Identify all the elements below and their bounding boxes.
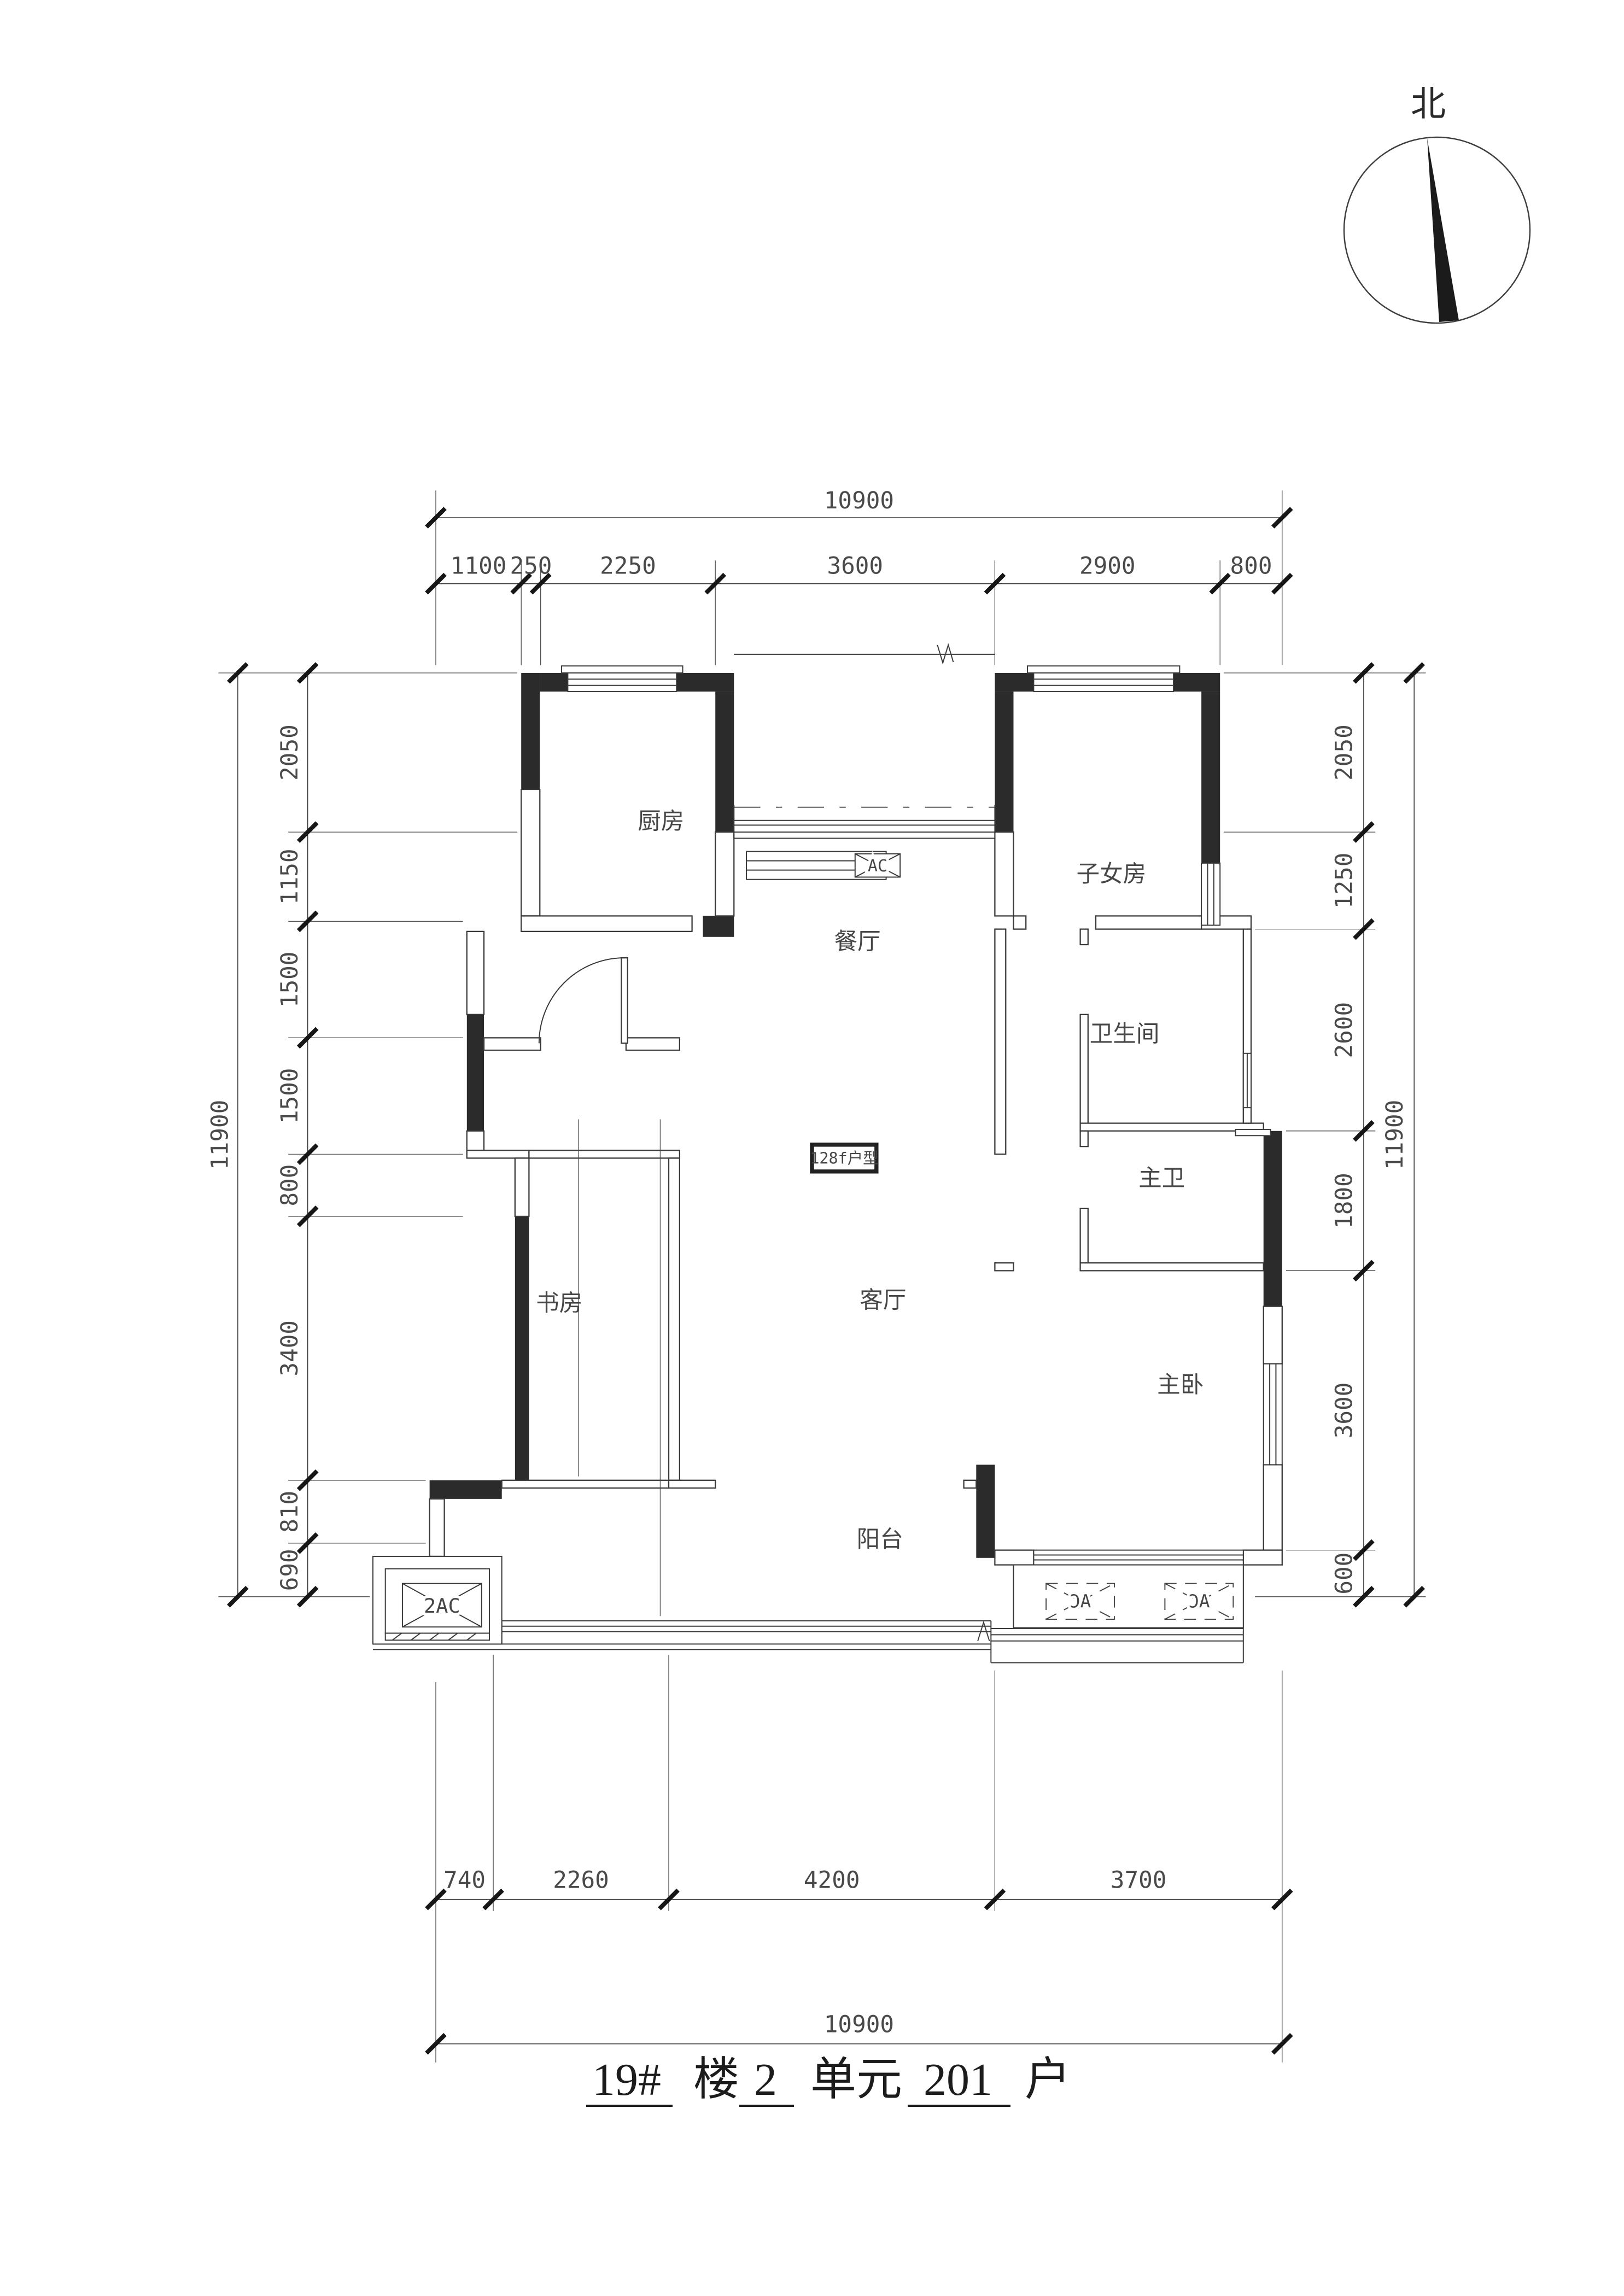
bedroom-south-window (1033, 1550, 1243, 1565)
floor-plan: AC 2AC AC (206, 487, 1426, 2063)
dim-left-seg2: 1150 (276, 848, 303, 905)
dim-left-seg1: 2050 (276, 724, 303, 781)
dim-left-seg5: 800 (276, 1164, 303, 1206)
dim-left-seg4: 1500 (276, 1068, 303, 1124)
dim-left-seg3: 1500 (276, 952, 303, 1008)
dim-left-seg8: 690 (276, 1549, 303, 1591)
dim-top-seg5: 2900 (1079, 552, 1136, 579)
dim-left-seg6: 3400 (276, 1320, 303, 1377)
dim-right-seg1: 2050 (1331, 724, 1358, 781)
title-room-no: 201 (924, 2054, 992, 2105)
entry-door-leaf (621, 958, 627, 1043)
balcony-railing (373, 1120, 1243, 1663)
children-window-box (1027, 666, 1179, 673)
title-building-label: 楼 (693, 2054, 739, 2105)
room-label-dining: 餐厅 (834, 928, 880, 956)
title-building-no: 19# (592, 2054, 661, 2105)
dimension-chain-bottom: 740 2260 4200 3700 10900 (427, 1655, 1292, 2063)
dim-top-seg3: 2250 (600, 552, 656, 579)
doors (539, 958, 628, 1043)
room-label-bathroom: 卫生间 (1090, 1021, 1160, 1048)
dim-bottom-seg4: 3700 (1111, 1866, 1167, 1894)
structural-walls (430, 673, 1282, 1558)
children-side-window (1201, 863, 1220, 926)
ac-box-dining: AC (855, 854, 900, 877)
dim-bottom-seg3: 4200 (804, 1866, 860, 1894)
dim-top-seg2: 250 (510, 552, 552, 579)
ac-label-southwest: 2AC (424, 1594, 460, 1618)
room-label-kitchen: 厨房 (638, 807, 684, 835)
room-label-masterbath: 主卫 (1138, 1165, 1185, 1192)
unit-type-box: 128f户型 (810, 1145, 878, 1172)
dim-top-seg1: 1100 (451, 552, 507, 579)
floorplan-page: 北 (0, 0, 1624, 2296)
masterbath-window (1236, 1129, 1271, 1135)
room-label-masterbed: 主卧 (1157, 1371, 1204, 1398)
dim-right-seg2: 1250 (1331, 853, 1358, 909)
room-label-balcony: 阳台 (857, 1526, 903, 1553)
children-window (1033, 673, 1173, 692)
floorplan-canvas: 北 (0, 0, 1624, 2296)
dim-bottom-seg1: 740 (443, 1866, 486, 1894)
ac-label-bedroom-2: AC (1188, 1591, 1210, 1612)
unit-type-label: 128f户型 (810, 1149, 878, 1167)
dimension-chain-top: 10900 1100 250 2250 3600 2900 800 (427, 487, 1292, 665)
dim-left-seg7: 810 (276, 1491, 303, 1533)
dim-right-seg6: 600 (1331, 1553, 1358, 1595)
dim-top-total: 10900 (824, 487, 894, 514)
ac-label-dining: AC (868, 857, 887, 876)
dim-right-seg5: 3600 (1331, 1383, 1358, 1439)
room-label-children: 子女房 (1077, 860, 1147, 888)
entry-door-swing (539, 958, 624, 1043)
room-label-living: 客厅 (860, 1287, 906, 1314)
sheet-title: 19# 楼 2 单元 201 户 (586, 2054, 1071, 2106)
dim-left-total: 11900 (206, 1100, 233, 1170)
dim-top-seg6: 800 (1230, 552, 1272, 579)
kitchen-window-box (562, 666, 683, 673)
ac-platform-southwest: 2AC (373, 1556, 502, 1644)
dim-right-total: 11900 (1381, 1100, 1409, 1170)
dim-right-seg3: 2600 (1331, 1002, 1358, 1058)
bedroom-side-window (1264, 1364, 1282, 1465)
dim-top-seg4: 3600 (827, 552, 884, 579)
title-unit-label: 单元 (810, 2054, 902, 2105)
compass-north-label: 北 (1411, 84, 1446, 125)
title-room-label: 户 (1025, 2054, 1071, 2105)
break-symbol-top (937, 645, 953, 663)
dim-bottom-total: 10900 (824, 2011, 894, 2038)
dim-right-seg4: 1800 (1331, 1173, 1358, 1229)
title-unit-no: 2 (754, 2054, 777, 2105)
room-label-study: 书房 (536, 1290, 582, 1317)
compass: 北 (1344, 84, 1530, 323)
dim-bottom-seg2: 2260 (553, 1866, 609, 1894)
ac-label-bedroom-1: AC (1070, 1591, 1091, 1612)
kitchen-window (568, 673, 676, 692)
ac-units: AC 2AC AC (373, 854, 1233, 1644)
north-needle-icon (1427, 138, 1459, 322)
